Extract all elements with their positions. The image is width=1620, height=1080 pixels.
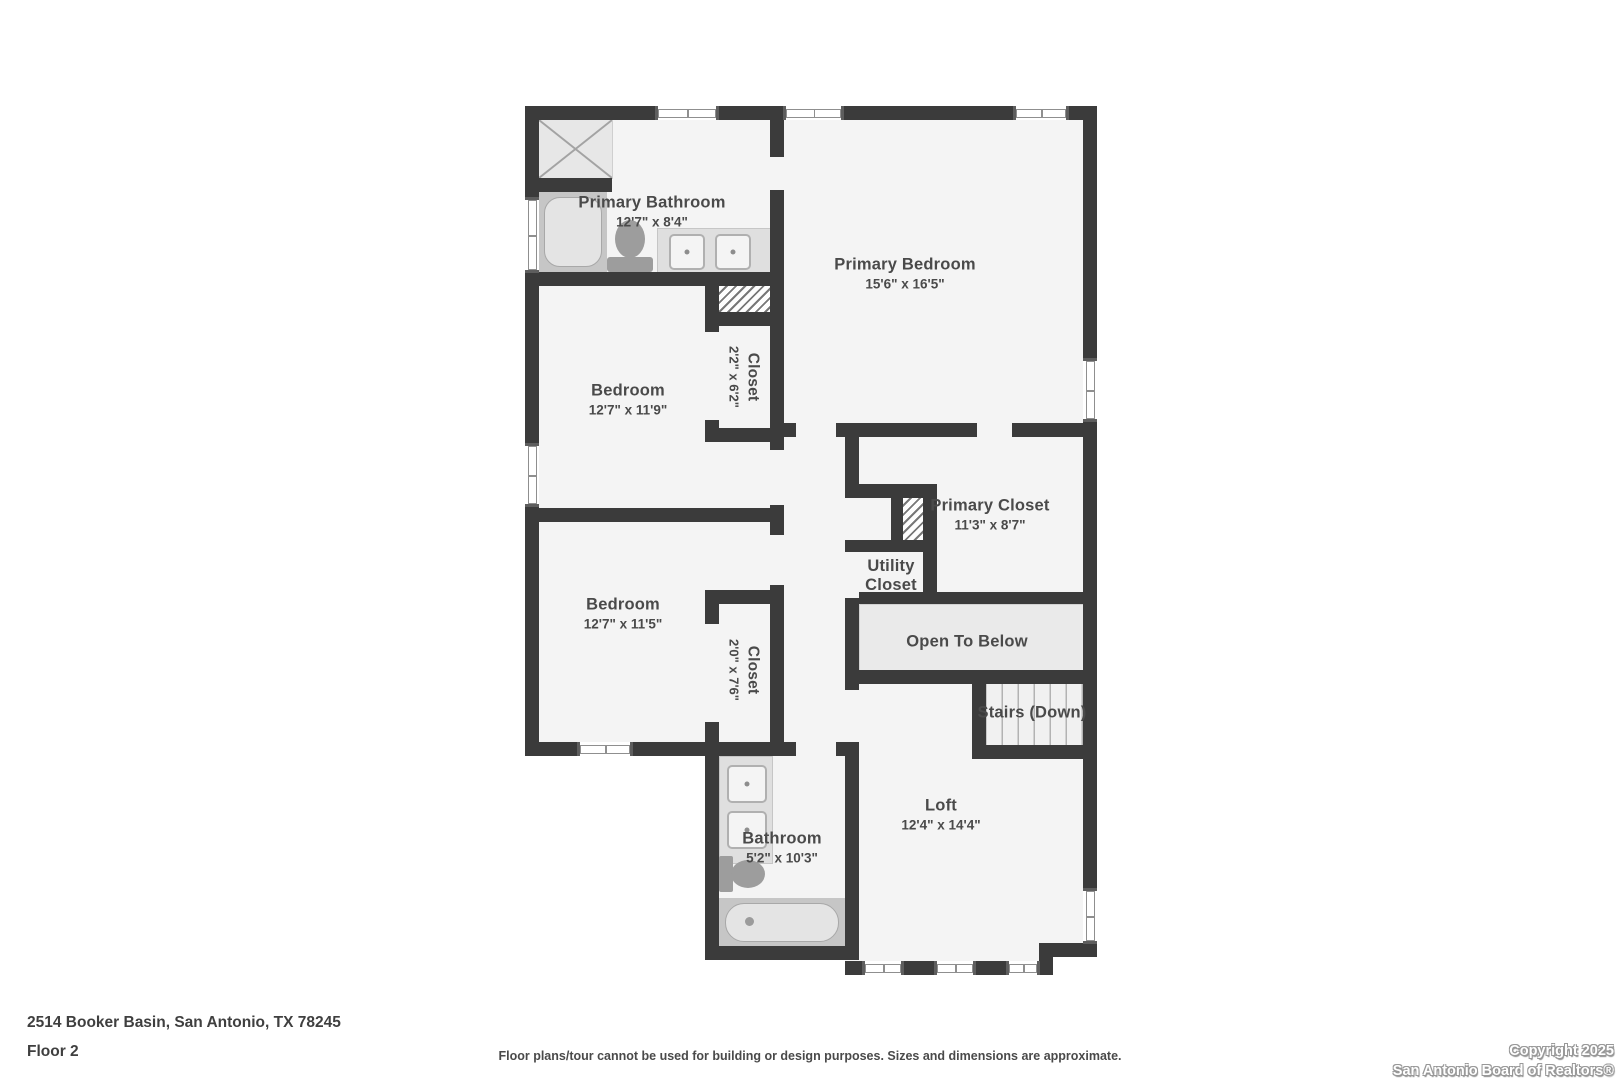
room-name: Primary Bathroom <box>578 194 725 213</box>
room-name: Loft <box>901 797 980 816</box>
room-name: Bedroom <box>584 596 663 615</box>
vanity-sink <box>727 765 767 803</box>
vanity-sink <box>715 234 751 270</box>
room-dims: 12'7" x 11'9" <box>589 403 668 419</box>
window <box>934 961 976 975</box>
wall <box>705 946 859 960</box>
copyright-line-1: Copyright 2025 <box>1393 1041 1614 1061</box>
room-label-loft: Loft 12'4" x 14'4" <box>901 797 980 834</box>
bathtub <box>719 898 845 946</box>
room-dims: 12'4" x 14'4" <box>901 818 980 834</box>
room-label-bedroom-1: Bedroom 12'7" x 11'9" <box>589 382 668 419</box>
vanity-counter <box>657 228 772 274</box>
room-label-primary-bedroom: Primary Bedroom 15'6" x 16'5" <box>834 256 975 293</box>
room-name: Primary Closet <box>930 497 1049 516</box>
door-opening <box>705 624 719 722</box>
window <box>1083 358 1097 422</box>
room-dims: 5'2" x 10'3" <box>742 851 822 867</box>
room-dims: 2'2" x 6'2" <box>726 346 742 408</box>
room-dims: 2'0" x 7'6" <box>726 639 742 701</box>
wall <box>972 745 1097 759</box>
wall <box>770 106 784 756</box>
room-label-closet-1: Closet 2'2" x 6'2" <box>726 346 763 408</box>
wall <box>1083 106 1097 957</box>
room-name: Open To Below <box>906 633 1027 652</box>
copyright-line-2: San Antonio Board of Realtors® <box>1393 1061 1614 1080</box>
wall <box>891 498 903 540</box>
room-label-bedroom-2: Bedroom 12'7" x 11'5" <box>584 596 663 633</box>
room-name: Stairs (Down) <box>978 704 1087 723</box>
room-dims: 15'6" x 16'5" <box>834 277 975 293</box>
room-name: Closet <box>744 639 763 701</box>
room-name: Utility Closet <box>852 557 930 595</box>
hatched-chase <box>903 498 923 540</box>
wall <box>859 484 923 498</box>
door-opening <box>845 498 859 540</box>
room-dims: 11'3" x 8'7" <box>930 518 1049 534</box>
room-label-primary-bathroom: Primary Bathroom 12'7" x 8'4" <box>578 194 725 231</box>
room-label-bathroom: Bathroom 5'2" x 10'3" <box>742 830 822 867</box>
room-label-stairs: Stairs (Down) <box>978 704 1087 723</box>
wall <box>525 272 784 286</box>
window <box>862 961 904 975</box>
room-name: Bathroom <box>742 830 822 849</box>
room-label-utility-closet: Utility Closet <box>852 557 930 595</box>
wall <box>845 742 859 960</box>
footer-address: 2514 Booker Basin, San Antonio, TX 78245 <box>27 1014 341 1032</box>
wall <box>525 508 784 522</box>
wall <box>1039 943 1053 975</box>
wall <box>845 670 1097 684</box>
door-opening <box>770 157 784 190</box>
wall <box>859 540 923 552</box>
room-label-open-to-below: Open To Below <box>906 633 1027 652</box>
door-opening <box>796 423 836 437</box>
window <box>783 106 844 120</box>
window <box>577 742 633 756</box>
window <box>1006 961 1040 975</box>
room-dims: 12'7" x 8'4" <box>578 215 725 231</box>
footer-disclaimer: Floor plans/tour cannot be used for buil… <box>0 1049 1620 1063</box>
room-label-closet-2: Closet 2'0" x 7'6" <box>726 639 763 701</box>
room-dims: 12'7" x 11'5" <box>584 617 663 633</box>
door-opening <box>796 742 836 756</box>
room-name: Bedroom <box>589 382 668 401</box>
room-name: Primary Bedroom <box>834 256 975 275</box>
window <box>1083 888 1097 944</box>
shower <box>539 120 612 178</box>
hatched-chase <box>719 286 770 312</box>
window <box>525 197 539 273</box>
floor-plan-page: Primary Bathroom 12'7" x 8'4" Primary Be… <box>0 0 1620 1080</box>
door-opening <box>770 535 784 585</box>
door-opening <box>977 423 1012 437</box>
footer-copyright: Copyright 2025 San Antonio Board of Real… <box>1393 1041 1614 1080</box>
door-opening <box>770 450 784 505</box>
window <box>525 443 539 507</box>
window <box>655 106 719 120</box>
room-name: Closet <box>744 346 763 408</box>
wall <box>845 590 859 690</box>
door-opening <box>705 332 719 420</box>
room-label-primary-closet: Primary Closet 11'3" x 8'7" <box>930 497 1049 534</box>
vanity-sink <box>669 234 705 270</box>
window <box>1013 106 1069 120</box>
